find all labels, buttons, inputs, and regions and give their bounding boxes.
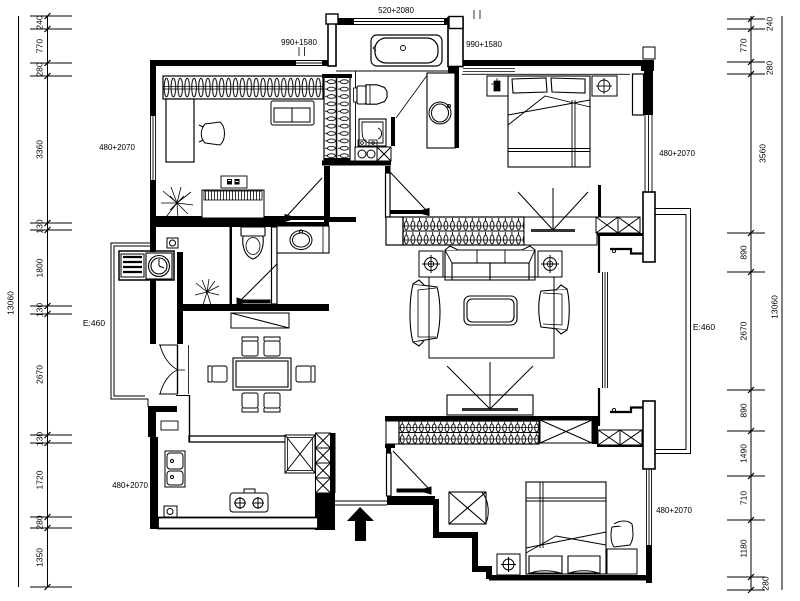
svg-text:130: 130	[34, 303, 44, 317]
svg-text:2670: 2670	[738, 321, 748, 340]
svg-text:280: 280	[764, 61, 774, 75]
svg-text:520+2080: 520+2080	[378, 6, 414, 15]
svg-text:1800: 1800	[34, 258, 44, 277]
svg-text:1490: 1490	[738, 444, 748, 463]
svg-text:280: 280	[34, 62, 44, 76]
svg-text:710: 710	[738, 491, 748, 505]
svg-text:480+2070: 480+2070	[99, 143, 135, 152]
svg-text:890: 890	[738, 245, 748, 259]
svg-text:990+1580: 990+1580	[466, 40, 502, 49]
svg-text:13060: 13060	[5, 291, 15, 315]
svg-text:240: 240	[764, 17, 774, 31]
svg-text:130: 130	[34, 432, 44, 446]
svg-text:1720: 1720	[34, 470, 44, 489]
svg-text:2670: 2670	[34, 365, 44, 384]
svg-text:890: 890	[738, 403, 748, 417]
svg-text:1350: 1350	[34, 548, 44, 567]
svg-text:3360: 3360	[34, 140, 44, 159]
svg-text:240: 240	[34, 15, 44, 29]
svg-text:130: 130	[34, 219, 44, 233]
svg-text:3560: 3560	[757, 144, 767, 163]
svg-text:770: 770	[738, 38, 748, 52]
svg-text:480+2070: 480+2070	[659, 149, 695, 158]
svg-text:1180: 1180	[738, 539, 748, 558]
svg-text:13060: 13060	[769, 295, 779, 319]
svg-text:E:460: E:460	[693, 322, 715, 332]
svg-text:E:460: E:460	[83, 318, 105, 328]
svg-text:770: 770	[34, 39, 44, 53]
svg-text:280: 280	[34, 515, 44, 529]
svg-text:990+1580: 990+1580	[281, 38, 317, 47]
svg-text:480+2070: 480+2070	[656, 506, 692, 515]
svg-text:480+2070: 480+2070	[112, 481, 148, 490]
svg-text:280: 280	[760, 576, 770, 590]
